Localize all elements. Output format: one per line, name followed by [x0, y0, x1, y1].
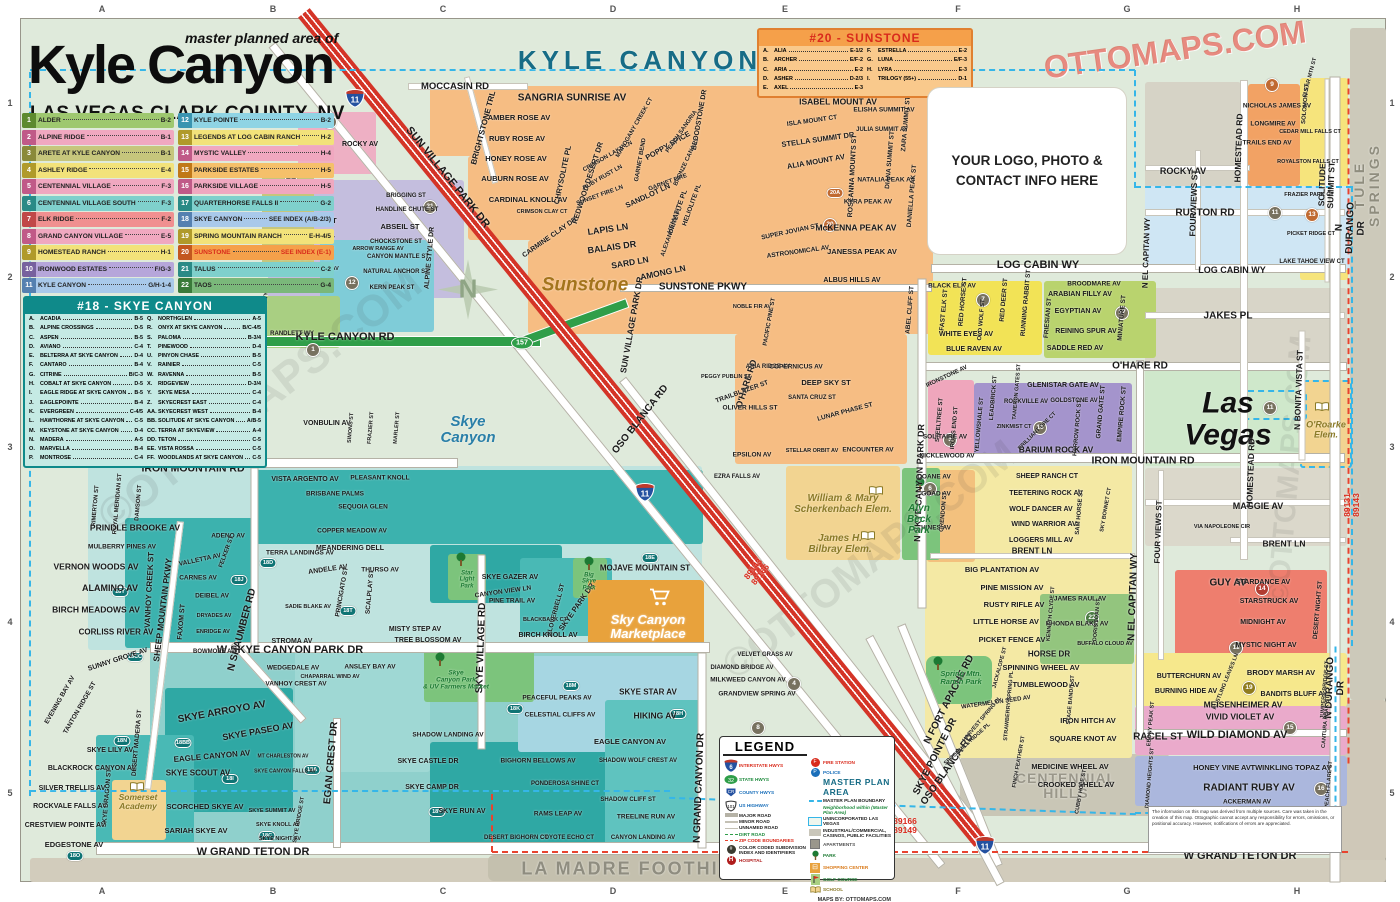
- subdivision-badge: 19: [1242, 681, 1256, 695]
- sub-index-gridref: A-5: [134, 437, 143, 443]
- street-label: Sky Canyon Marketplace: [610, 613, 685, 641]
- sub-index-item: AA.SKYECREST WESTB-4: [147, 409, 261, 418]
- sub-index-name: AVIANO: [40, 344, 61, 350]
- sub-index-item: B.ARCHERE/F-2: [763, 57, 863, 66]
- legend-item: DIRT ROAD: [723, 832, 807, 837]
- index-item: 5CENTENNIAL VILLAGEF-3: [22, 179, 174, 194]
- sub-index-item: Y.SKYE MESAC-4: [147, 390, 261, 399]
- sub-index-leader: [918, 79, 956, 80]
- legend-item: 101US HIGHWAY: [723, 800, 807, 812]
- street-label: CHOCKSTONE ST: [370, 239, 422, 245]
- street-label: BURNING HIDE AV: [1155, 688, 1217, 696]
- street-label: NICHOLAS JAMES AV: [1243, 102, 1311, 109]
- street-label: SEQUOIA GLEN: [338, 503, 388, 510]
- index-name: IRONWOOD ESTATES: [36, 266, 107, 273]
- sub-index-letter: D.: [763, 76, 774, 82]
- master-plan-boundary: [1134, 70, 1136, 188]
- sub-index-leader: [63, 347, 133, 348]
- street-label: ROCKVILLE AV: [1004, 399, 1048, 405]
- sub-index-letter: Z.: [147, 400, 158, 406]
- sub-index-leader: [210, 412, 250, 413]
- sub-index-leader: [799, 60, 848, 61]
- legend-item: MASTER PLAN AREA: [807, 778, 891, 797]
- street-label: OLIVER HILLS ST: [723, 404, 778, 411]
- street-label: FRAZIER ST: [368, 412, 377, 445]
- street-label: BROODMARE AV: [1067, 280, 1120, 287]
- street-label: AUBURN ROSE AV: [481, 175, 549, 183]
- sub-index-gridref: A/B-5: [247, 418, 261, 424]
- sub-index-item: BB.SOLITUDE AT SKYE CANYONA/B-5: [147, 418, 261, 427]
- interstate-shield: 11: [974, 835, 996, 855]
- sub-index-letter: EE.: [147, 446, 158, 452]
- sub-index-item: Z.SKYECREST EASTC-4: [147, 400, 261, 409]
- street-label: ABSEIL ST: [380, 223, 419, 231]
- index-item: 15PARKSIDE ESTATESH-5: [178, 163, 334, 178]
- street-label: CHAPARRAL WIND AV: [300, 675, 359, 681]
- sub-index-leader: [186, 375, 250, 376]
- book-icon: [1315, 399, 1330, 417]
- legend-label: US HIGHWAY: [739, 803, 769, 808]
- index-name: ALPINE RIDGE: [36, 134, 85, 141]
- legend: LEGEND 6INTERSTATE HWYS32STATE HWYSCRCOU…: [719, 736, 895, 880]
- sub-index-leader: [96, 328, 133, 329]
- int-icon: 6: [723, 758, 739, 773]
- index-gridref: E-H-4/5: [309, 233, 334, 240]
- index-gridref: G/H-1-4: [148, 282, 174, 289]
- street-label: WOLF DANCER AV: [1009, 506, 1072, 514]
- sub-index-name: LYRA: [878, 67, 892, 73]
- cc-icon: #: [723, 845, 739, 854]
- map-title: Kyle Canyon: [28, 38, 333, 92]
- sub-index-leader: [121, 431, 133, 432]
- index-number: 17: [178, 196, 192, 211]
- sub-index-letter: E.: [763, 85, 774, 91]
- subdivision-badge: 18D: [260, 558, 277, 568]
- sub-index-gridref: B-5: [134, 316, 143, 322]
- sub-index-item: S.PALOMAB-3/4: [147, 335, 261, 344]
- sub-index-item: A.ALIAE-1/2: [763, 48, 863, 57]
- index-name: TALUS: [192, 266, 216, 273]
- sub-index-item: T.PINEWOODD-4: [147, 344, 261, 353]
- index-gridref: F/G-3: [155, 266, 174, 273]
- index-item: 4ASHLEY RIDGEE-4: [22, 163, 174, 178]
- sub-index-leader: [73, 458, 132, 459]
- index-name: SKYE CANYON: [192, 216, 242, 223]
- sub-index-gridref: D-1: [958, 76, 967, 82]
- street-label: TEETERING ROCK AV: [1009, 490, 1083, 498]
- street-label: TWINKLING TOPAZ AV: [1251, 764, 1332, 772]
- legend-item: GOLF COURSE: [807, 874, 891, 885]
- sub-index-leader: [81, 403, 133, 404]
- sub-index-item: J.EAGLEPOINTEB-4: [29, 400, 143, 409]
- legend-label: DIRT ROAD: [739, 832, 765, 837]
- street-label: RAMS LEAP AV: [534, 810, 582, 817]
- index-gridref: SEE INDEX (A/B-2/3): [269, 216, 334, 223]
- sub-index-letter: I.: [867, 76, 878, 82]
- street-label: PEGGY PUBLIN ST: [701, 375, 751, 381]
- index-gridref: E-4: [161, 167, 174, 174]
- disclaimer-box: The information on this map was derived …: [1148, 806, 1342, 853]
- sub-index-leader: [72, 449, 132, 450]
- sub-index-name: TRILOGY (55+): [878, 76, 916, 82]
- street-label: BOWMORE AV: [193, 649, 235, 655]
- majroad-icon: [723, 813, 739, 817]
- street-label: STROMA AV: [272, 638, 313, 646]
- sub-index-leader: [209, 403, 250, 404]
- index-gridref: SEE INDEX (E-1): [281, 249, 334, 256]
- legend-item: 6INTERSTATE HWYS: [723, 758, 807, 773]
- street-label: BRODY MARSH AV: [1247, 669, 1315, 677]
- sub-index-name: ESTRELLA: [878, 48, 906, 54]
- street-label: CANYON MANTLE ST: [367, 254, 429, 260]
- sub-index-letter: AA.: [147, 409, 158, 415]
- legend-label: PARK: [823, 853, 836, 858]
- sub-index-name: BELTERRA AT SKYE CANYON: [40, 353, 118, 359]
- index-leader: [138, 201, 160, 202]
- legend-item: Neighborhood within (Master Plan Area): [807, 805, 891, 815]
- index-gridref: H-2: [321, 134, 334, 141]
- sub-index-name: ARCHER: [774, 57, 797, 63]
- street-label: ARROW RANGE AV: [352, 247, 403, 253]
- sub-index-name: ASPEN: [40, 335, 59, 341]
- street-label: CRIMSON CLAY CT: [517, 210, 568, 216]
- index-gridref: F-3: [161, 183, 174, 190]
- index-name: PARKSIDE VILLAGE: [192, 183, 258, 190]
- index-gridref: B-1: [161, 134, 174, 141]
- index-number: 3: [22, 146, 36, 161]
- street-label: ROYALSTON FALLS CT: [1277, 160, 1339, 166]
- sub-index-name: RAVENNA: [158, 372, 184, 378]
- index-name: LEGENDS AT LOG CABIN RANCH: [192, 134, 300, 141]
- unroad-icon: [723, 828, 739, 829]
- legend-item: MINOR ROAD: [723, 819, 807, 824]
- street-label: Spring Mtn. Ranch Park: [940, 670, 981, 686]
- street-label: EGYPTIAN AV: [1055, 308, 1102, 316]
- sub-index-item: G.CITRINEB/C-3: [29, 372, 143, 381]
- street-label: BRIGGING ST: [386, 193, 426, 199]
- index-leader: [260, 185, 319, 186]
- street-label: BRISBANE PALMS: [306, 490, 364, 497]
- legend-label: Neighborhood within (Master Plan Area): [823, 805, 891, 815]
- legend-label: HOSPITAL: [739, 858, 762, 863]
- index-number: 15: [178, 163, 192, 178]
- street-label: PICKET FENCE AV: [979, 636, 1046, 644]
- street-label: KYRA PEAK AV: [844, 198, 892, 205]
- index-number: 18: [178, 212, 192, 227]
- street-label: BLACKROCK CANYON AV: [48, 765, 136, 773]
- street-label: MYSTIC NIGHT AV: [1235, 642, 1296, 650]
- street-label: VERNON WOODS AV: [53, 562, 138, 571]
- map-region: [605, 700, 705, 845]
- index-name: ELK RIDGE: [36, 216, 74, 223]
- sub-index-leader: [64, 375, 127, 376]
- index-leader: [108, 251, 159, 252]
- street-label: SCORCHED SKYE AV: [166, 803, 243, 811]
- sub-index-leader: [192, 393, 251, 394]
- sub-index-gridref: D-5: [134, 325, 143, 331]
- street-label: EAGLE CANYON AV: [594, 738, 666, 746]
- index-leader: [122, 152, 159, 153]
- street-label: DESERT BIGHORN CT: [484, 835, 548, 841]
- street-label: SKYE LILY AV: [87, 747, 133, 755]
- sub-index-leader: [224, 328, 240, 329]
- legend-item: ZIP CODE BOUNDARIES: [723, 838, 807, 843]
- sub-index-item: G.LUNAE/F-3: [867, 57, 967, 66]
- street-label: LOG CABIN WY: [1198, 266, 1266, 276]
- legend-label: APARTMENTS: [823, 842, 855, 847]
- legend-label: ZIP CODE BOUNDARIES: [739, 838, 794, 843]
- street-label: MEISENHEIMER AV: [1204, 700, 1283, 709]
- sub-index-gridref: D-3/4: [248, 381, 261, 387]
- sub-index-letter: A.: [29, 316, 40, 322]
- sub-index-leader: [196, 449, 250, 450]
- legend-right-column: FFIRE STATIONPPOLICEMASTER PLAN AREAMAST…: [807, 758, 891, 895]
- sub-index-leader: [128, 393, 132, 394]
- street-label: RADIANT RUBY AV: [1203, 784, 1294, 795]
- street-label: LOGGERS MILL AV: [1009, 537, 1073, 545]
- sub-index-item: M.KEYSTONE AT SKYE CANYOND-4: [29, 428, 143, 437]
- legend-item: UNNAMED ROAD: [723, 825, 807, 830]
- sub-index-letter: FF.: [147, 455, 158, 461]
- legend-label: SCHOOL: [823, 887, 843, 892]
- sub-index-gridref: B/C-3: [129, 372, 143, 378]
- street-label: IRON MOUNTAIN RD: [1091, 455, 1194, 466]
- sub-index-gridref: C-5: [134, 418, 143, 424]
- sub-index-name: ARIA: [774, 67, 787, 73]
- index-number: 7: [22, 212, 36, 227]
- street-label: ALAMINO AV: [82, 584, 138, 594]
- sub-index-leader: [201, 356, 250, 357]
- bluedash-icon: [807, 800, 823, 802]
- sub-index-name: SKYECREST WEST: [158, 409, 208, 415]
- street-label: SQUARE KNOT AV: [1049, 735, 1116, 743]
- sub-index-gridref: B-4: [134, 400, 143, 406]
- street-label: SKYE RUN AV: [438, 808, 485, 816]
- street-label: WEDGEDALE AV: [267, 664, 319, 671]
- legend-label: INDUSTRIAL/COMMERCIAL, CASINOS, PUBLIC F…: [823, 828, 891, 838]
- street-label: FRAZIER PARK CT: [1284, 193, 1333, 199]
- sub-index-leader: [126, 421, 132, 422]
- sub-index-gridref: D-2/3: [850, 76, 863, 82]
- index-column-2: 12KYLE POINTEB-213LEGENDS AT LOG CABIN R…: [178, 113, 334, 295]
- sub-index-letter: V.: [147, 362, 158, 368]
- sub-index-name: TERRA AT SKYEVIEW: [158, 428, 214, 434]
- street-label: LAKE TAHOE VIEW CT: [1279, 259, 1344, 265]
- sub-index-name: RAINIER: [158, 362, 180, 368]
- sub-index-letter: F.: [867, 48, 878, 54]
- street-label: BUFFALO CLOUD AV: [1077, 642, 1133, 648]
- index-gridref: B-2: [161, 117, 174, 124]
- sub-index-item: C.ARIAE-2: [763, 67, 863, 76]
- street-label: Skye Canyon Park & UV Farmers Market: [423, 669, 489, 690]
- index-number: 22: [178, 278, 192, 293]
- sub-index-gridref: B-5: [252, 353, 261, 359]
- index-number: 9: [22, 245, 36, 260]
- index-leader: [261, 168, 319, 169]
- svg-text:11: 11: [981, 843, 990, 852]
- sub-index-name: ONYX AT SKYE CANYON: [158, 325, 222, 331]
- street-label: ANSLEY BAY AV: [344, 663, 395, 670]
- sub-index-leader: [66, 440, 133, 441]
- sub-index-gridref: B-5: [134, 335, 143, 341]
- street-label: GLENISTAR GATE AV: [1027, 382, 1099, 390]
- street-label: MARLER ST: [394, 412, 403, 444]
- index-number: 10: [22, 262, 36, 277]
- sub-index-name: ALPINE CROSSINGS: [40, 325, 94, 331]
- street-label: BLUE RAVEN AV: [946, 346, 1002, 354]
- street-label: NATURAL ANCHOR ST: [363, 269, 429, 275]
- sub-index-gridref: B-5: [134, 390, 143, 396]
- street-label: James H. Bilbray Elem.: [808, 534, 871, 556]
- index-item: 1ALDERB-2: [22, 113, 174, 128]
- sub-index-name: AXEL: [774, 85, 788, 91]
- street-label: Alyn Beck Park: [907, 504, 931, 536]
- index-name: KYLE CANYON: [36, 282, 86, 289]
- legend-item: SCHOOL: [807, 886, 891, 894]
- index-number: 6: [22, 196, 36, 211]
- sub-index-name: EAGLE RIDGE AT SKYE CANYON: [40, 390, 126, 396]
- sub-index-letter: X.: [147, 381, 158, 387]
- index-gridref: H-5: [321, 167, 334, 174]
- sub-index-gridref: A-4: [252, 428, 261, 434]
- sub-index-name: KEYSTONE AT SKYE CANYON: [40, 428, 119, 434]
- street-label: RUBY ROSE AV: [489, 135, 545, 143]
- street-label: 89131 89143: [1343, 493, 1361, 517]
- street-label: REINING SPUR AV: [1055, 328, 1116, 336]
- tree-icon: [807, 850, 823, 861]
- sub-index-leader: [190, 347, 250, 348]
- legend-label: FIRE STATION: [823, 760, 855, 765]
- sub-index-name: PINYON CHASE: [158, 353, 199, 359]
- sub-index-gridref: E/F-3: [954, 57, 967, 63]
- sub-index-name: CITRINE: [40, 372, 62, 378]
- sub-index-gridref: B-4: [134, 362, 143, 368]
- legend-item: 32STATE HWYS: [723, 774, 807, 785]
- state-icon: 32: [723, 774, 739, 785]
- subdivision-badge: 20A: [827, 188, 844, 198]
- index-name: ASHLEY RIDGE: [36, 167, 87, 174]
- sub-index-letter: B.: [763, 57, 774, 63]
- street-label: WILD DIAMOND AV: [1187, 730, 1288, 742]
- sub-index-name: ALIA: [774, 48, 787, 54]
- sub-index-letter: G.: [29, 372, 40, 378]
- street-label: SKYE SCOUT AV: [166, 770, 230, 779]
- sub-index-leader: [245, 458, 250, 459]
- index-number: 4: [22, 163, 36, 178]
- sub-index-gridref: A-5: [252, 316, 261, 322]
- street-label: STELLAR ORBIT AV: [786, 449, 839, 455]
- street-label: BIG PLANTATION AV: [965, 566, 1039, 574]
- street-label: TRAILS END AV: [1242, 139, 1291, 146]
- street-label: AMBER ROSE AV: [488, 114, 551, 122]
- index-gridref: B-2: [321, 117, 334, 124]
- street-label: O'Roarke Elem.: [1306, 420, 1346, 439]
- subdivision-badge: 4: [787, 677, 801, 691]
- street-label: O'HARE RD: [1112, 362, 1168, 373]
- legend-credit: MAPS BY: OTTOMAPS.COM: [723, 897, 891, 902]
- index-name: HOMESTEAD RANCH: [36, 249, 106, 256]
- street-label: PICKET RIDGE CT: [1287, 232, 1335, 238]
- street-label: BIGHORN BELLOWS AV: [500, 757, 575, 764]
- svg-text:11: 11: [351, 96, 360, 105]
- street-label: SILVER TRELLIS AV: [39, 785, 106, 793]
- sub-index-item: FF.WOODLANDS AT SKYE CANYONC-5: [147, 455, 261, 464]
- svg-text:N: N: [459, 274, 478, 304]
- sub-index-leader: [789, 70, 852, 71]
- sub-index-item: I.TRILOGY (55+)D-1: [867, 76, 967, 85]
- sub-index-gridref: E-2: [959, 48, 967, 54]
- index-item: 10IRONWOOD ESTATESF/G-3: [22, 262, 174, 277]
- sub-index-item: N.MADERAA-5: [29, 437, 143, 446]
- street-label: SARIAH SKYE AV: [165, 827, 228, 835]
- legend-label: INTERSTATE HWYS: [739, 763, 783, 768]
- sub-index-name: MADERA: [40, 437, 64, 443]
- legend-label: MAJOR ROAD: [739, 813, 771, 818]
- sub-index-leader: [69, 365, 133, 366]
- legend-item: UNINCORPORATED LAS VEGAS: [807, 816, 891, 826]
- street-label: SKYE STAR AV: [619, 689, 677, 698]
- county-icon: CR: [723, 786, 739, 798]
- street-label: ISABEL MOUNT AV: [799, 97, 877, 106]
- index-leader: [280, 201, 318, 202]
- sub-index-item: B.ALPINE CROSSINGSD-5: [29, 325, 143, 334]
- sub-index-gridref: D-5: [134, 381, 143, 387]
- street-label: CRESTVIEW POINTE AV: [25, 822, 106, 830]
- index-column-1: 1ALDERB-22ALPINE RIDGEB-13ARETE AT KYLE …: [22, 113, 174, 295]
- sub-index-letter: E.: [29, 353, 40, 359]
- street-label: SHADOW WOLF CREST AV: [599, 758, 677, 764]
- sub-index-item: EE.VISTA ROSSAC-5: [147, 446, 261, 455]
- subdivision-badge: 8: [751, 721, 765, 735]
- street-label: BANDITS BLUFF AV: [1261, 691, 1328, 699]
- index-leader: [63, 119, 159, 120]
- sub-index-leader: [183, 338, 246, 339]
- legend-item: APARTMENTS: [807, 839, 891, 849]
- index-gridref: E-5: [161, 233, 174, 240]
- index-leader: [76, 218, 160, 219]
- map-region: [1350, 28, 1386, 700]
- street-label: KYLE CANYON: [518, 46, 762, 74]
- index-item: 19SPRING MOUNTAIN RANCHE-H-4/5: [178, 229, 334, 244]
- master-plan-boundary: [1351, 186, 1353, 646]
- street-label: BRENT LN: [1012, 548, 1052, 557]
- sub-index-letter: W.: [147, 372, 158, 378]
- street-label: NICKLEWOOD AV: [919, 452, 974, 459]
- zip-boundary: [491, 794, 493, 852]
- street-label: N EL CAPITAN WY: [1141, 218, 1152, 289]
- street-label: W GRAND TETON DR: [197, 847, 310, 859]
- sub-index-letter: Y.: [147, 390, 158, 396]
- index-name: SPRING MOUNTAIN RANCH: [192, 233, 282, 240]
- index-item: 14MYSTIC VALLEYH-4: [178, 146, 334, 161]
- street-label: MIDNIGHT AV: [1240, 619, 1286, 627]
- sub-index-leader: [194, 319, 250, 320]
- zip-icon: [723, 840, 739, 841]
- index-leader: [248, 152, 318, 153]
- index-gridref: F-3: [161, 200, 174, 207]
- street-label: ACKERMAN AV: [1223, 798, 1271, 805]
- street-label: SKYE CANYON FALLS AV: [254, 769, 316, 774]
- street-label: VANHOY CREST AV: [265, 680, 326, 687]
- sub-index-name: ACADIA: [40, 316, 61, 322]
- street-label: ROCKVALE FALLS AV: [33, 803, 107, 811]
- street-label: N DURANGO DR: [1334, 202, 1368, 255]
- sub-index-item: U.PINYON CHASEB-5: [147, 353, 261, 362]
- street-label: ZINKMIST CT: [997, 425, 1032, 431]
- sub-index-name: HAWTHORNE AT SKYE CANYON: [40, 418, 124, 424]
- sub-index-item: I.EAGLE RIDGE AT SKYE CANYONB-5: [29, 390, 143, 399]
- street-label: DOANE AV: [917, 473, 951, 480]
